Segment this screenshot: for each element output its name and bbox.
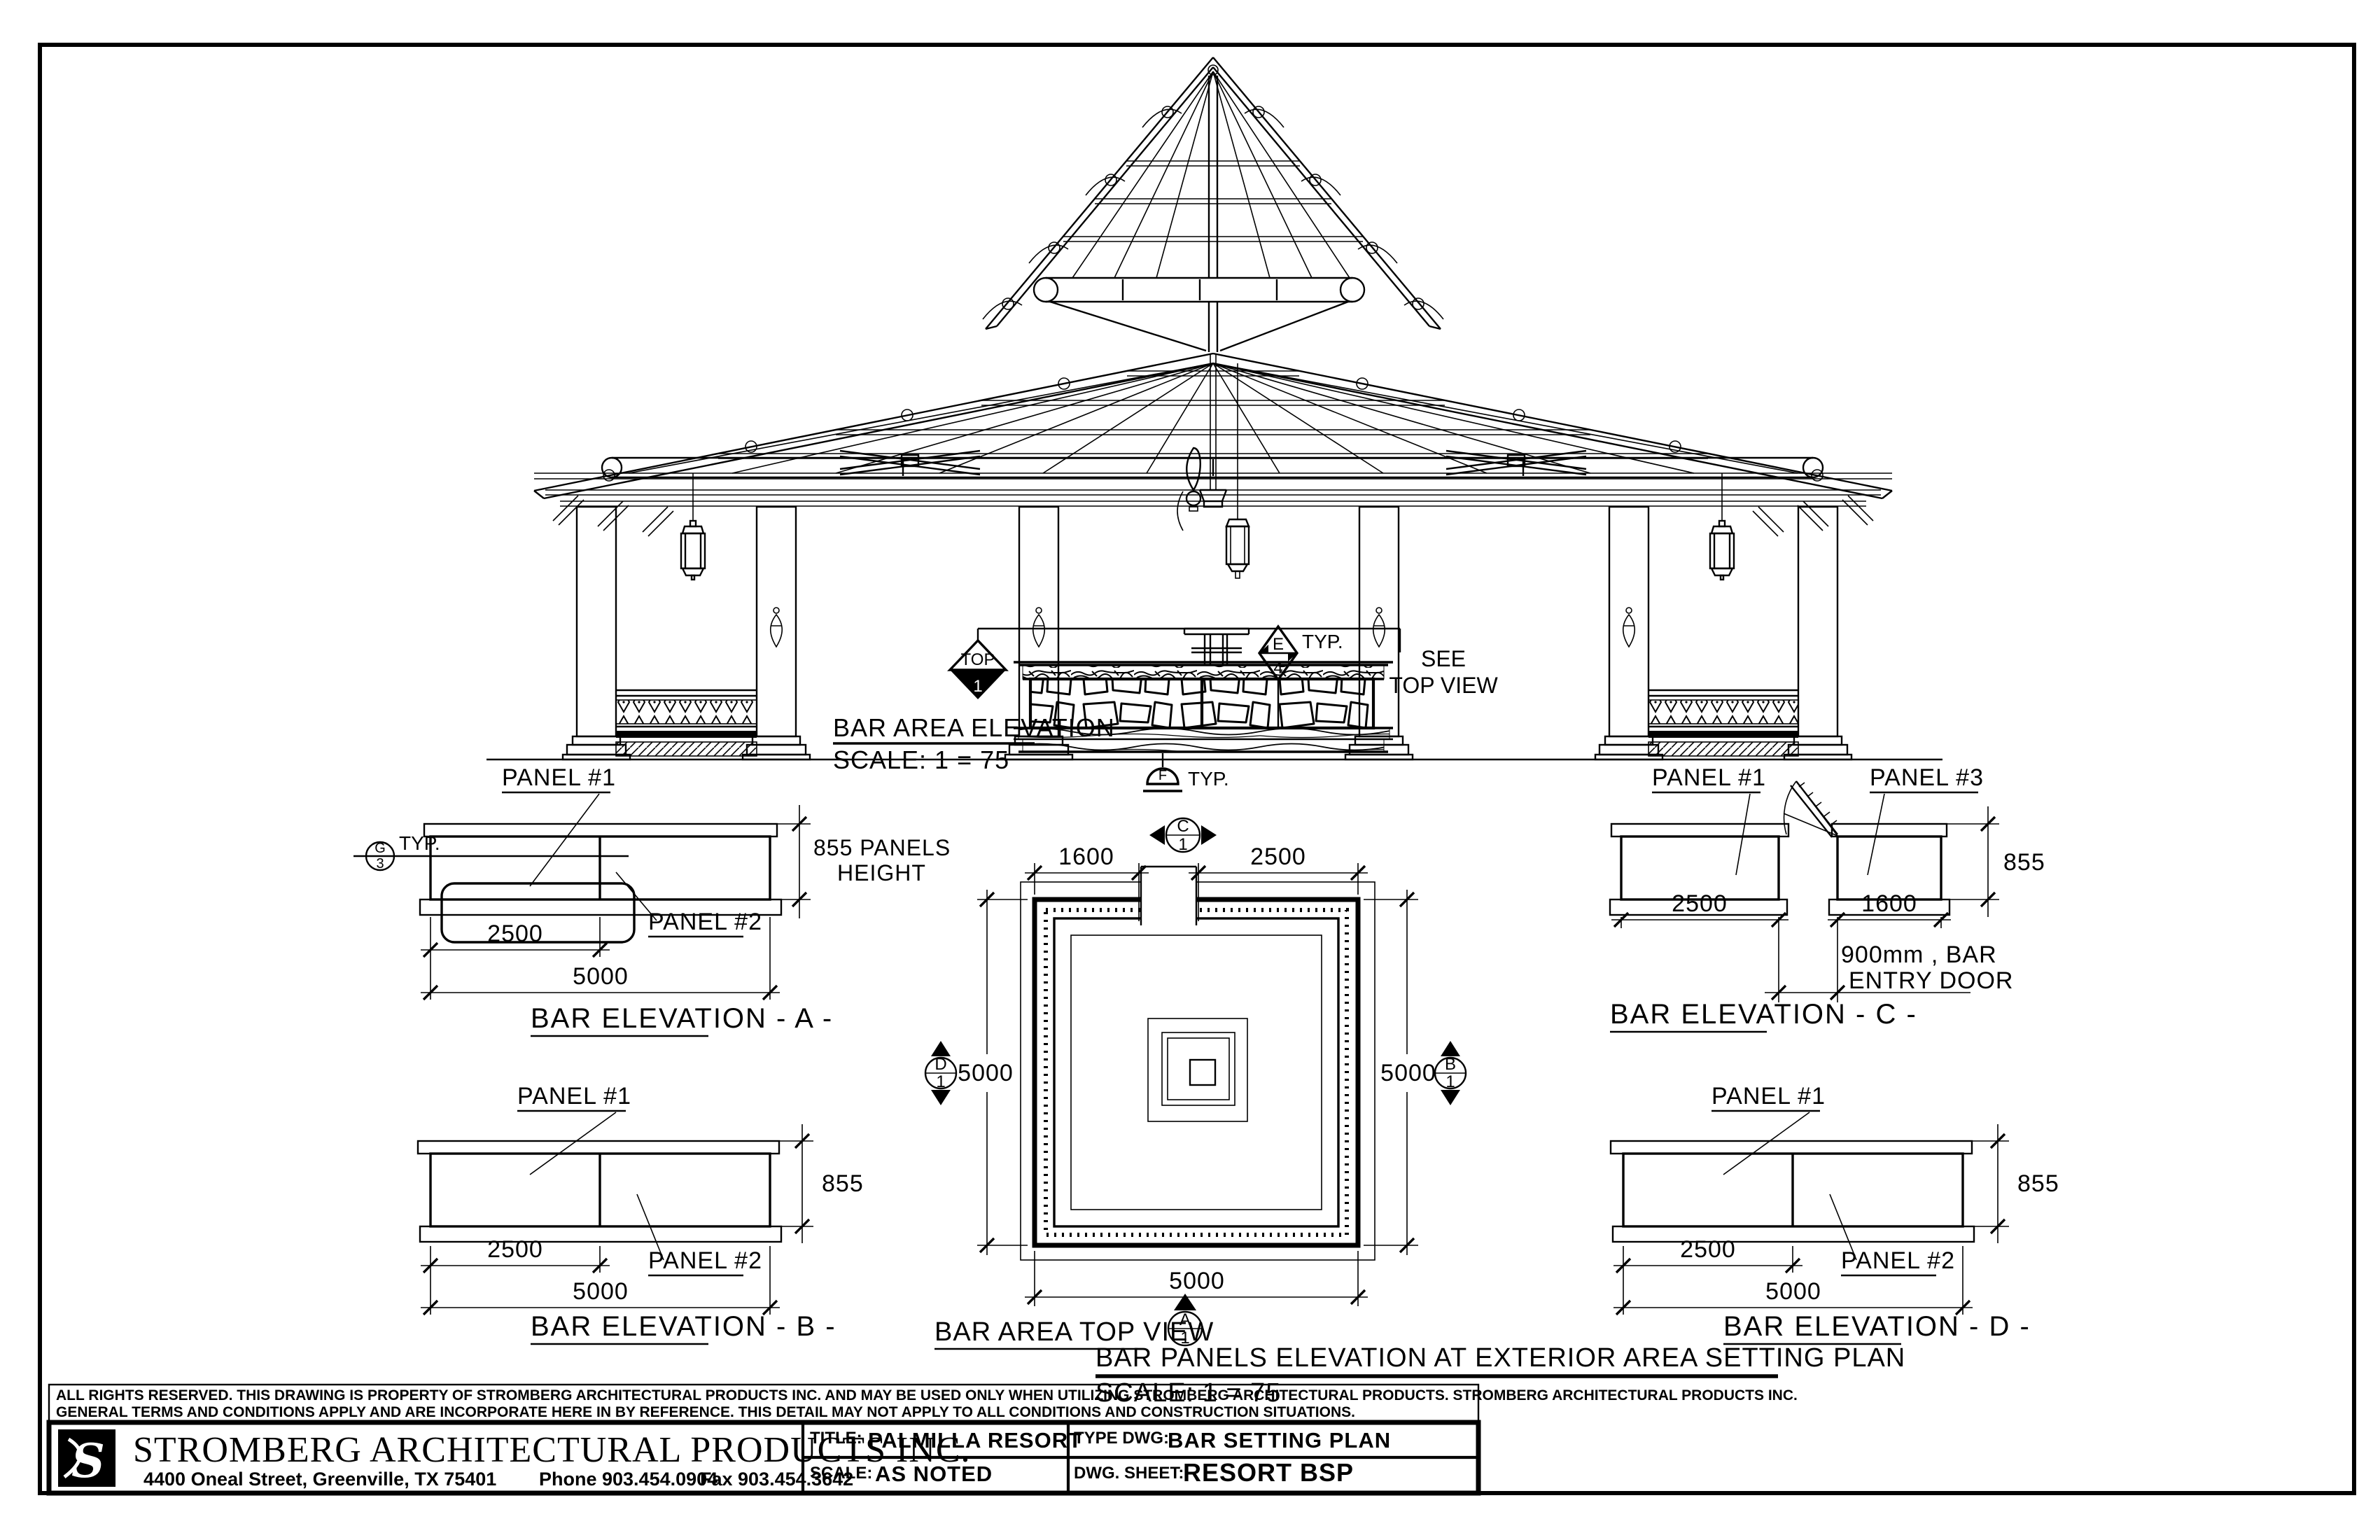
dim-855-c-text: 855: [2003, 849, 2045, 876]
door-note-1: 900mm , BAR: [1841, 941, 1997, 968]
marker-d-letter: D: [934, 1055, 946, 1074]
scale-label: SCALE:: [810, 1464, 872, 1483]
scale-value: AS NOTED: [875, 1462, 993, 1486]
marker-b-number: 1: [1445, 1072, 1455, 1091]
marker-top-label: TOP: [961, 650, 995, 669]
marker-g-number: 3: [376, 856, 384, 871]
bar-top-view: 1600 2500 5000 5000 5000 C 1 A 1 D 1 B 1…: [925, 817, 1466, 1349]
dim-5000-d-text: 5000: [1765, 1278, 1821, 1305]
marker-d-number: 1: [936, 1072, 945, 1091]
dim-1600-top: 1600: [1058, 843, 1114, 870]
panel2-label: PANEL #2: [648, 1247, 762, 1274]
dim-5000-right: 5000: [1380, 1060, 1436, 1086]
see-top-view-1: SEE: [1421, 646, 1466, 671]
dim-5000-b-text: 5000: [573, 1278, 629, 1305]
top-view-title: BAR AREA TOP VIEW: [934, 1317, 1214, 1347]
marker-e-typ: TYP.: [1302, 631, 1343, 652]
elevation-a-title: BAR ELEVATION - A -: [531, 1003, 833, 1034]
upper-roof: [983, 57, 1443, 352]
type-dwg-label: TYPE DWG:: [1074, 1429, 1169, 1448]
dim-2500-b-text: 2500: [487, 1236, 543, 1263]
logo-letter: S: [71, 1434, 105, 1488]
title-block: ALL RIGHTS RESERVED. THIS DRAWING IS PRO…: [49, 1385, 1798, 1493]
marker-b-letter: B: [1445, 1055, 1456, 1074]
company-address: 4400 Oneal Street, Greenville, TX 75401: [143, 1469, 496, 1490]
door-note-2: ENTRY DOOR: [1849, 967, 2013, 994]
dim-5000-left: 5000: [958, 1060, 1014, 1086]
marker-g-typ: TYP.: [399, 832, 440, 854]
panel2-label: PANEL #2: [1841, 1247, 1955, 1274]
marker-c-letter: C: [1177, 817, 1189, 836]
elevation-b-title: BAR ELEVATION - B -: [531, 1311, 836, 1342]
bar-elevation-a: PANEL #1 PANEL #2 G 3 TYP. 855 PANELS HE…: [353, 764, 951, 1036]
sconce-icon: [1033, 608, 1045, 647]
elevation-d-title: BAR ELEVATION - D -: [1723, 1311, 2031, 1342]
view-marker-d: D 1: [925, 1041, 956, 1105]
drawing-sheet: TOP 1 E 4 TYP. F TYP. SEE TOP VIEW BAR A…: [0, 0, 2380, 1540]
panel2-label: PANEL #2: [648, 909, 762, 935]
entry-door: [1784, 781, 1837, 837]
panel3-label: PANEL #3: [1870, 764, 1984, 791]
height-note-2: HEIGHT: [837, 860, 926, 885]
dim-855-a: [774, 805, 811, 918]
dim-2500-c-text: 2500: [1672, 890, 1728, 917]
dwg-sheet-value: RESORT BSP: [1183, 1458, 1354, 1487]
see-top-view-2: TOP VIEW: [1389, 673, 1498, 698]
panel1-label: PANEL #1: [502, 764, 616, 791]
company-logo: S: [58, 1429, 115, 1488]
dim-2500-d-text: 2500: [1680, 1236, 1736, 1263]
dim-2500-a-text: 2500: [487, 920, 543, 947]
view-marker-b: B 1: [1435, 1041, 1466, 1105]
dwg-sheet-label: DWG. SHEET:: [1074, 1464, 1184, 1483]
marker-top-number: 1: [973, 677, 982, 696]
low-wall-left: [616, 690, 757, 756]
panel1-label: PANEL #1: [1711, 1083, 1826, 1109]
dim-5000-bottom: 5000: [1169, 1268, 1225, 1294]
marker-e-letter: E: [1273, 635, 1284, 654]
marker-f-letter: F: [1158, 768, 1167, 783]
dim-855-c: [1945, 806, 1999, 917]
marker-c-number: 1: [1178, 835, 1187, 854]
dim-855-d-text: 855: [2017, 1170, 2059, 1197]
elevation-c-title: BAR ELEVATION - C -: [1610, 999, 1917, 1030]
marker-e-number: 4: [1273, 659, 1282, 678]
sconce-icon: [771, 608, 783, 647]
eave-beams: [534, 451, 1892, 536]
sconce-lights: [771, 608, 1635, 647]
bar-elevation-b: PANEL #1 PANEL #2 855 2500 5000 BAR ELEV…: [418, 1083, 864, 1344]
height-note-1: 855 PANELS: [813, 835, 951, 860]
section-marker-f: F TYP.: [1143, 768, 1229, 791]
marker-g-letter: G: [374, 841, 386, 856]
bar-elevation-c: PANEL #1 PANEL #3 855 2500 1600 900mm , …: [1610, 764, 2045, 1032]
dim-5000-a-text: 5000: [573, 963, 629, 990]
dim-855-b-text: 855: [822, 1170, 864, 1197]
hanging-lantern-left: [681, 473, 705, 580]
bar-elevation-d: PANEL #1 PANEL #2 855 2500 5000 BAR ELEV…: [1611, 1083, 2059, 1344]
sconce-icon: [1373, 608, 1385, 647]
main-elevation-title: BAR AREA ELEVATION: [833, 713, 1115, 742]
marker-f-typ: TYP.: [1188, 768, 1229, 790]
panel1-label: PANEL #1: [1652, 764, 1766, 791]
view-marker-c: C 1: [1149, 817, 1217, 854]
dim-2500-top: 2500: [1250, 843, 1306, 870]
type-dwg-value: BAR SETTING PLAN: [1168, 1428, 1391, 1452]
section-marker-top1: TOP 1: [950, 640, 1006, 699]
building-elevation: TOP 1 E 4 TYP. F TYP. SEE TOP VIEW BAR A…: [486, 57, 1942, 791]
dim-1600-c-text: 1600: [1861, 890, 1917, 917]
caption-line1: BAR PANELS ELEVATION AT EXTERIOR AREA SE…: [1095, 1343, 1905, 1373]
hanging-lantern-right: [1710, 473, 1734, 580]
disclaimer-line1: ALL RIGHTS RESERVED. THIS DRAWING IS PRO…: [56, 1387, 1798, 1403]
main-elevation-scale: SCALE: 1 = 75: [833, 745, 1009, 774]
sconce-icon: [1623, 608, 1635, 647]
title-value: PALMILLA RESORT: [868, 1428, 1082, 1452]
bar-back-shelf: [1184, 629, 1249, 665]
disclaimer-line2: GENERAL TERMS AND CONDITIONS APPLY AND A…: [56, 1404, 1355, 1420]
panel1-label: PANEL #1: [517, 1083, 631, 1109]
company-phone: Phone 903.454.0904: [539, 1469, 717, 1490]
low-wall-right: [1648, 690, 1798, 756]
title-label: TITLE:: [810, 1429, 862, 1448]
